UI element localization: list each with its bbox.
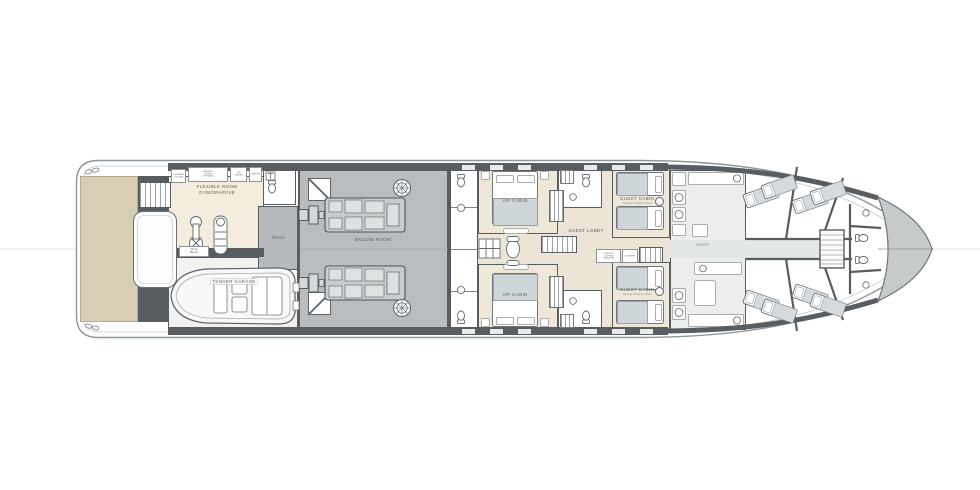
storage-box: STORAGE	[622, 249, 638, 263]
aft-cabinet-fridge: FRIDGE	[249, 167, 262, 182]
guest-table	[655, 287, 664, 296]
engine-port	[299, 198, 405, 232]
pantry-label: PANTRY	[696, 243, 710, 247]
toilet-icon	[458, 174, 465, 187]
workbench-box: Work Bench	[179, 246, 209, 257]
vent-grille	[394, 180, 411, 197]
aft-stairs	[139, 182, 171, 208]
toilet-icon	[269, 180, 276, 193]
toilet-icon	[583, 174, 590, 187]
vent-grille	[394, 300, 411, 317]
toilet-icon	[458, 311, 465, 324]
vip-lobby-furniture	[479, 237, 520, 266]
bow-stairs	[820, 230, 844, 268]
toilet-icon	[583, 311, 590, 324]
flexible-room-label: FLEXIBLE ROOM GYM/SPA/DIVE	[197, 184, 238, 196]
toilet-icon	[855, 257, 868, 264]
vip-cabin-upper-label: VIP CABIN	[502, 198, 527, 204]
detail-layer	[0, 0, 980, 490]
tech-label: TECH	[271, 235, 285, 241]
guest-cabin-lower-label: GUEST CABIN Sliding Pullman Bed	[620, 287, 654, 297]
aft-cabinet-ice-maker: ICE MAKER	[230, 167, 247, 182]
yacht-deck-plan: STORAGE LOCKER WASHER / DRYER STORAGE IC…	[0, 0, 980, 490]
shower-icon	[266, 172, 275, 180]
engine-starboard	[299, 266, 405, 300]
engine-room-label: ENGINE ROOM	[355, 237, 391, 243]
fridge-coffee-box: FRIDGE / COFFEE MACHINE	[596, 249, 621, 263]
guest-table	[655, 197, 664, 206]
guest-cabin-upper-label: GUEST CABIN Sliding Pullman Bed	[620, 196, 654, 206]
aft-cabinet-storage-locker: STORAGE LOCKER	[171, 169, 186, 183]
toilet-icon	[855, 235, 868, 242]
crew-stairs-mid	[639, 247, 663, 263]
aft-cabinet-washer-dryer: WASHER / DRYER STORAGE	[188, 167, 228, 182]
guest-lobby-label: GUEST LOBBY	[568, 228, 604, 234]
guest-lobby-stairs	[541, 236, 577, 253]
tender-boat	[171, 268, 299, 324]
vip-cabin-lower-label: VIP CABIN	[502, 292, 527, 298]
tender-garage-label: TENDER GARAGE	[210, 279, 258, 285]
